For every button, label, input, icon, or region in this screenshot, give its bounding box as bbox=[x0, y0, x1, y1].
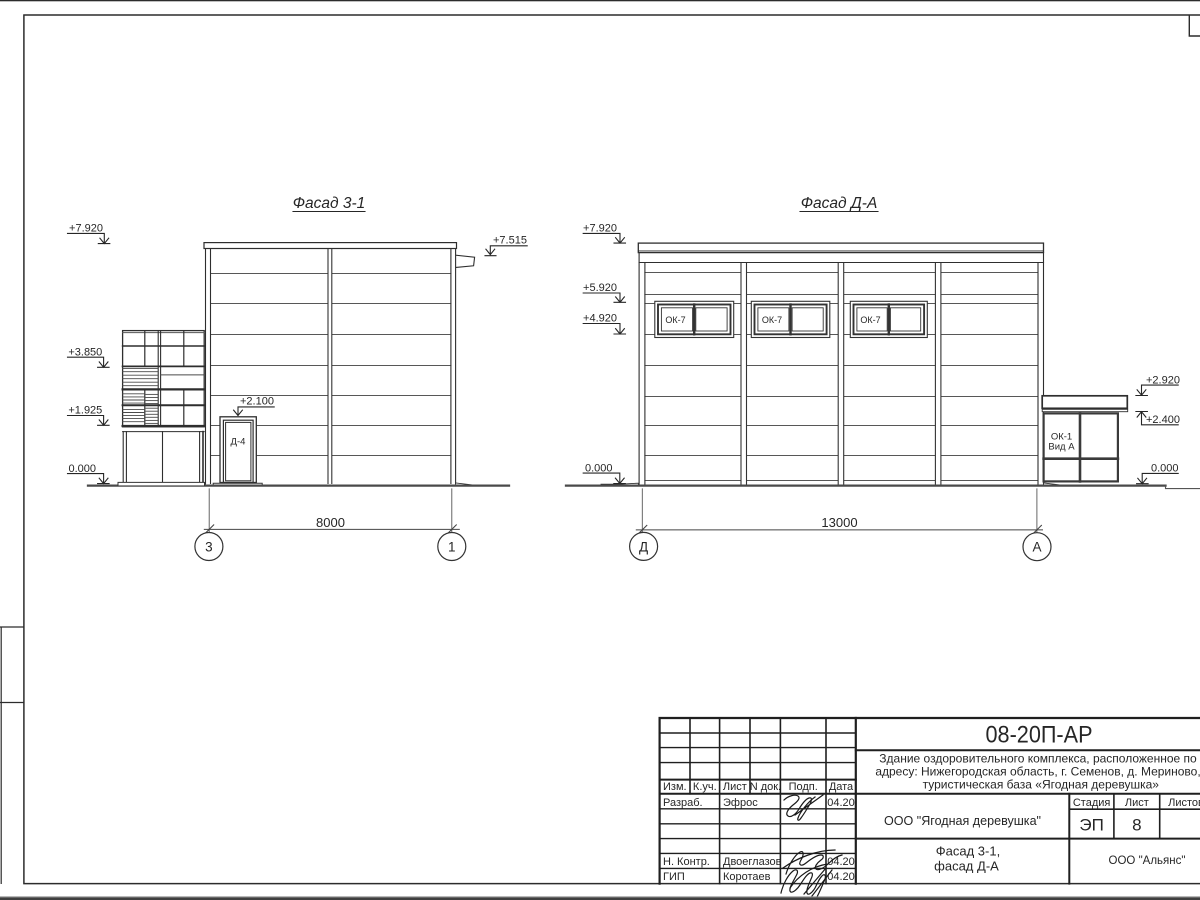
svg-text:Листов: Листов bbox=[1168, 797, 1200, 809]
svg-text:Фасад 3-1,: Фасад 3-1, bbox=[936, 843, 1000, 858]
svg-text:+3.850: +3.850 bbox=[68, 346, 102, 358]
svg-text:Д: Д bbox=[639, 539, 648, 554]
svg-text:К.уч.: К.уч. bbox=[693, 781, 717, 793]
svg-text:Лист: Лист bbox=[723, 781, 747, 793]
svg-text:+1.925: +1.925 bbox=[68, 405, 102, 417]
svg-text:ОК-7: ОК-7 bbox=[665, 315, 685, 325]
svg-text:Подп.: Подп. bbox=[789, 781, 818, 793]
svg-text:+2.400: +2.400 bbox=[1146, 414, 1180, 426]
svg-text:0.000: 0.000 bbox=[585, 462, 613, 474]
svg-text:+4.920: +4.920 bbox=[583, 313, 617, 325]
svg-text:0.000: 0.000 bbox=[68, 463, 96, 475]
svg-text:фасад Д-А: фасад Д-А bbox=[934, 859, 999, 874]
svg-text:ОК-7: ОК-7 bbox=[860, 315, 880, 325]
svg-text:ООО "Альянс": ООО "Альянс" bbox=[1109, 855, 1186, 867]
svg-text:ГИП: ГИП bbox=[663, 871, 685, 883]
svg-text:0.000: 0.000 bbox=[1151, 462, 1179, 474]
svg-text:04.20: 04.20 bbox=[827, 856, 855, 868]
svg-text:08-20П-АР: 08-20П-АР bbox=[986, 721, 1093, 748]
svg-text:ЭП: ЭП bbox=[1079, 816, 1103, 835]
svg-text:Д-4: Д-4 bbox=[231, 437, 246, 448]
svg-text:Дата: Дата bbox=[829, 781, 854, 793]
svg-text:1: 1 bbox=[448, 540, 456, 555]
svg-text:Эфрос: Эфрос bbox=[723, 797, 758, 809]
svg-text:3: 3 bbox=[205, 540, 213, 555]
svg-text:8: 8 bbox=[1132, 816, 1141, 835]
svg-text:N док.: N док. bbox=[750, 781, 781, 793]
svg-text:+2.920: +2.920 bbox=[1146, 374, 1180, 386]
svg-text:ООО "Ягодная деревушка": ООО "Ягодная деревушка" bbox=[884, 813, 1041, 828]
svg-text:+7.515: +7.515 bbox=[493, 235, 527, 247]
svg-text:Изм.: Изм. bbox=[663, 781, 687, 793]
svg-text:Фасад Д-А: Фасад Д-А bbox=[801, 195, 878, 212]
svg-text:04.20: 04.20 bbox=[827, 797, 855, 809]
svg-text:Вид А: Вид А bbox=[1048, 441, 1075, 452]
svg-text:+2.100: +2.100 bbox=[240, 395, 274, 407]
svg-text:Здание оздоровительного компле: Здание оздоровительного комплекса, распо… bbox=[879, 752, 1197, 766]
svg-text:ОК-7: ОК-7 bbox=[762, 315, 782, 325]
svg-text:13000: 13000 bbox=[821, 515, 857, 530]
svg-text:Стадия: Стадия bbox=[1073, 797, 1111, 809]
svg-text:Разраб.: Разраб. bbox=[663, 797, 703, 809]
svg-text:04.20: 04.20 bbox=[827, 871, 855, 883]
svg-text:Фасад 3-1: Фасад 3-1 bbox=[293, 195, 366, 212]
svg-text:адресу: Нижегородская область,: адресу: Нижегородская область, г. Семено… bbox=[875, 765, 1200, 779]
svg-text:Лист: Лист bbox=[1125, 797, 1149, 809]
svg-text:туристическая база «Ягодная де: туристическая база «Ягодная деревушка» bbox=[923, 778, 1160, 792]
svg-text:Двоеглазов: Двоеглазов bbox=[723, 856, 782, 868]
svg-text:А: А bbox=[1032, 540, 1041, 555]
svg-text:Н. Контр.: Н. Контр. bbox=[663, 856, 710, 868]
svg-text:+5.920: +5.920 bbox=[583, 282, 617, 294]
svg-text:8000: 8000 bbox=[316, 515, 345, 530]
svg-text:Коротаев: Коротаев bbox=[723, 871, 771, 883]
